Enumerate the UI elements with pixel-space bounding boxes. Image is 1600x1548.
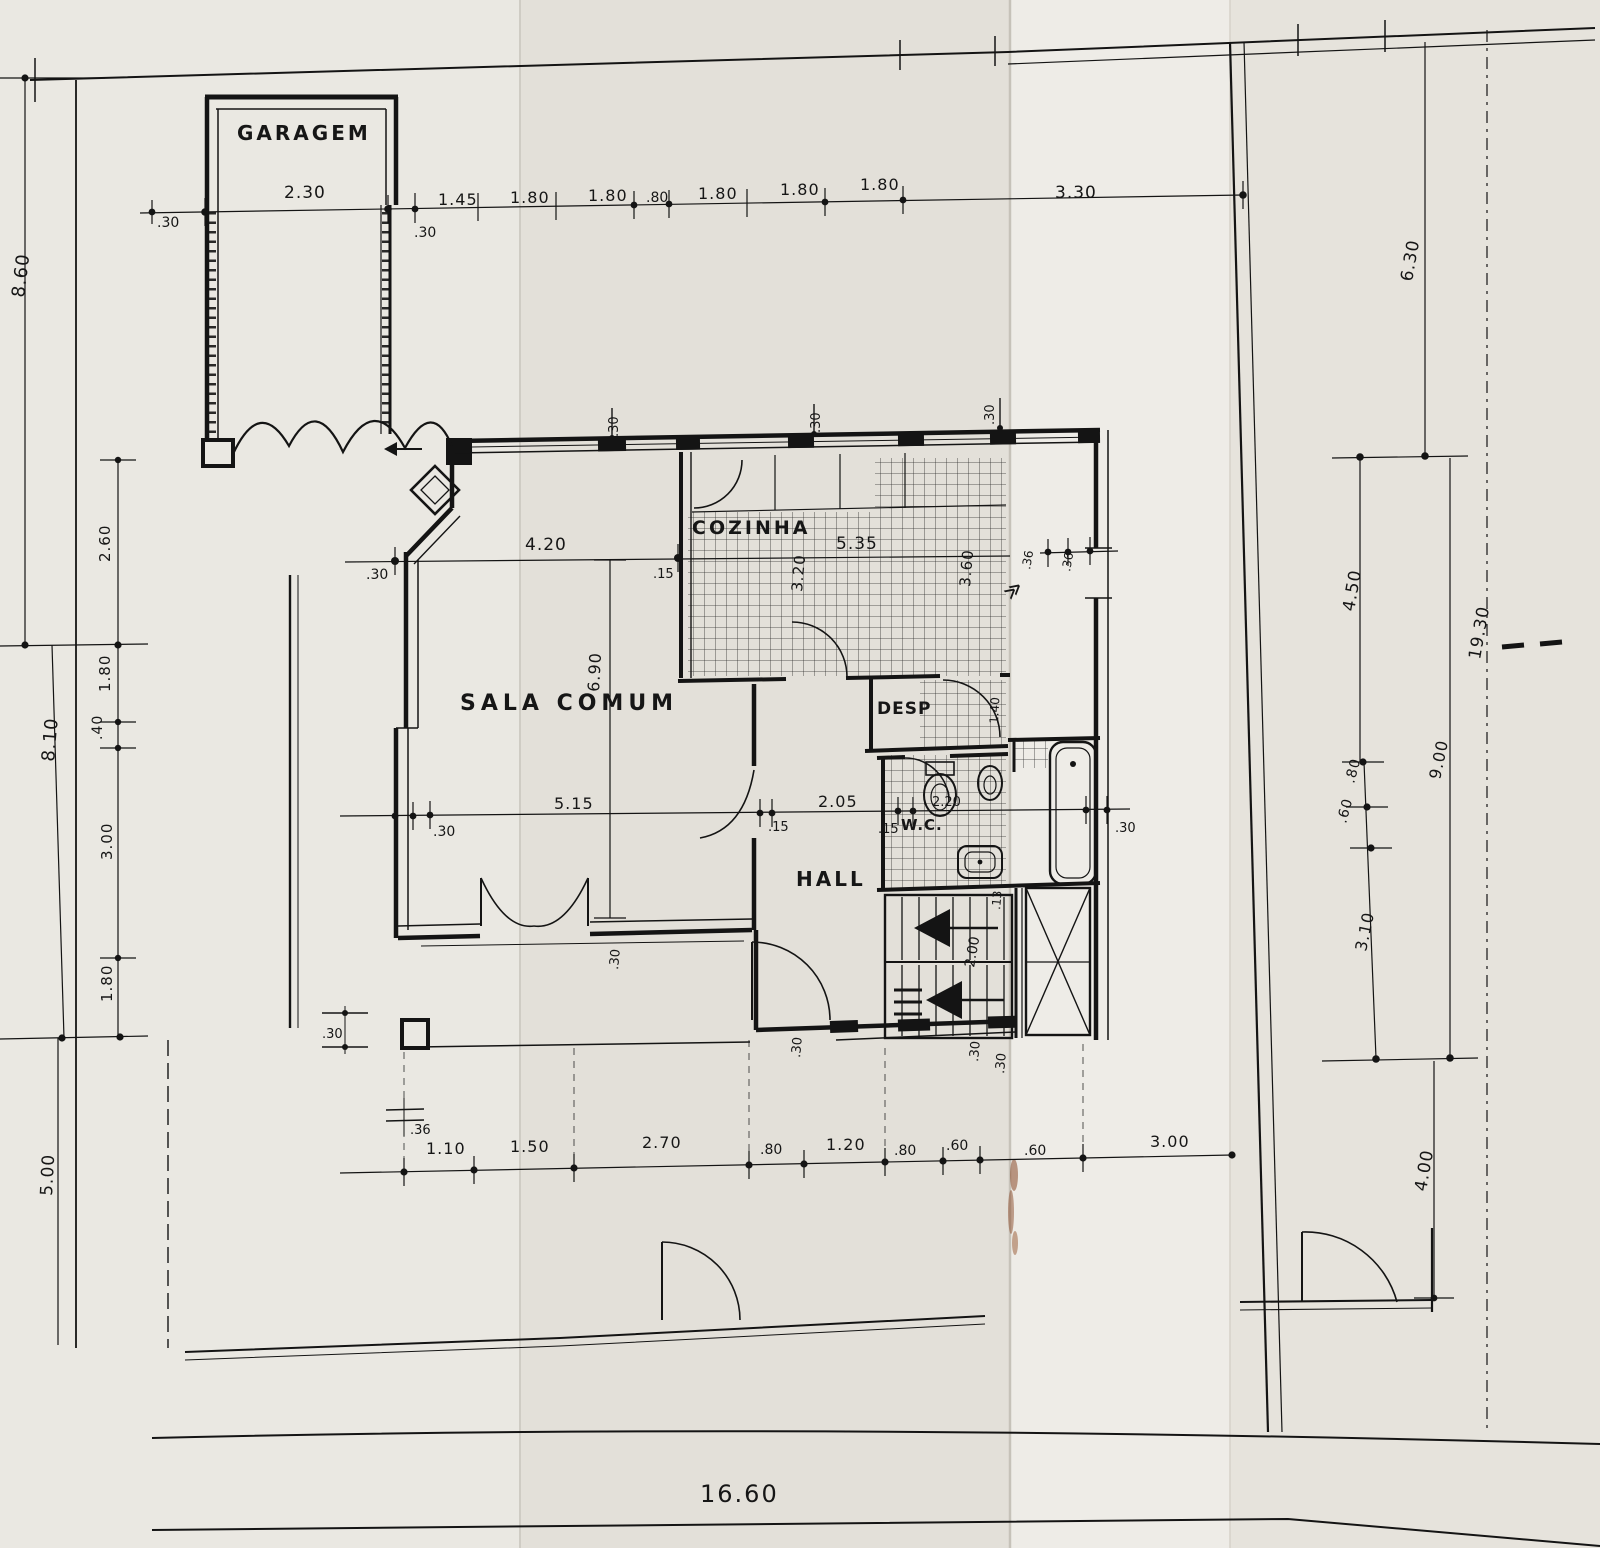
dim-label: 6.90 [584,652,605,693]
dim-label: .30 [366,567,388,583]
room-label-cozinha: COZINHA [692,517,810,539]
floor-plan-sheet: GARAGEM SALA COMUM COZINHA DESP W.C. HAL… [0,0,1600,1548]
dim-label: 1.80 [96,655,114,692]
dim-label: 1.20 [826,1135,866,1154]
dim-label: 1.40 [987,697,1002,724]
dim-label: .13 [989,890,1005,910]
dim-label: .30 [967,1040,984,1062]
dim-label: 4.20 [525,535,567,555]
dim-label: 1.45 [438,190,478,209]
dim-label: .30 [1115,821,1136,836]
dim-label: .30 [983,404,998,425]
dim-label: 2.05 [818,792,858,811]
dim-label: 3.30 [1055,183,1097,203]
room-label-sala-comum: SALA COMUM [460,691,678,716]
dim-label: 5.15 [554,794,594,813]
dim-label: 1.80 [860,175,900,194]
dim-label: .60 [946,1138,968,1154]
dim-label: 1.80 [698,184,738,203]
dim-label: .80 [894,1143,916,1159]
dim-label: .15 [768,820,789,835]
dim-label: .30 [993,1052,1010,1074]
dim-label: 5.00 [37,1153,59,1196]
room-label-wc: W.C. [901,816,943,834]
dim-label: .30 [607,416,622,437]
dim-label: 2.30 [284,183,326,203]
dim-label-overall: 16.60 [700,1480,779,1508]
dim-label: .30 [433,824,455,840]
dim-label: 2.20 [932,795,961,810]
dim-label: 1.80 [510,188,550,207]
dim-label: 2.60 [96,525,114,562]
dim-label: 1.10 [426,1139,466,1158]
dim-label: .40 [90,715,106,740]
dim-label: 1.80 [780,180,820,199]
room-label-hall: HALL [796,867,866,891]
dim-label: .36 [410,1123,431,1138]
dim-label: .15 [878,822,899,837]
dim-label: 1.80 [588,186,628,205]
dim-label: 2.70 [642,1133,682,1152]
dim-label: .30 [414,225,436,241]
dim-label: .15 [653,567,674,582]
dim-label: 5.35 [836,534,878,554]
dim-label: .30 [322,1027,343,1042]
dim-label: .60 [1024,1143,1046,1159]
dim-label: 3.00 [98,823,116,860]
dim-label: 3.00 [1150,1132,1190,1151]
dim-label: .80 [760,1142,782,1158]
dim-label: 3.60 [956,549,977,588]
floor-plan-svg: GARAGEM SALA COMUM COZINHA DESP W.C. HAL… [0,0,1600,1548]
room-label-garagem: GARAGEM [237,121,371,145]
dim-label: .30 [809,412,824,433]
dim-label: 8.10 [38,717,63,763]
dim-label: 1.80 [98,965,116,1002]
dim-label: 1.50 [510,1137,550,1156]
dim-label: .80 [646,190,668,206]
dim-label: .30 [789,1036,806,1058]
dim-label: 3.20 [788,554,809,593]
room-label-desp: DESP [877,699,931,719]
dim-label: .30 [607,948,624,970]
dim-label: .30 [157,215,179,231]
